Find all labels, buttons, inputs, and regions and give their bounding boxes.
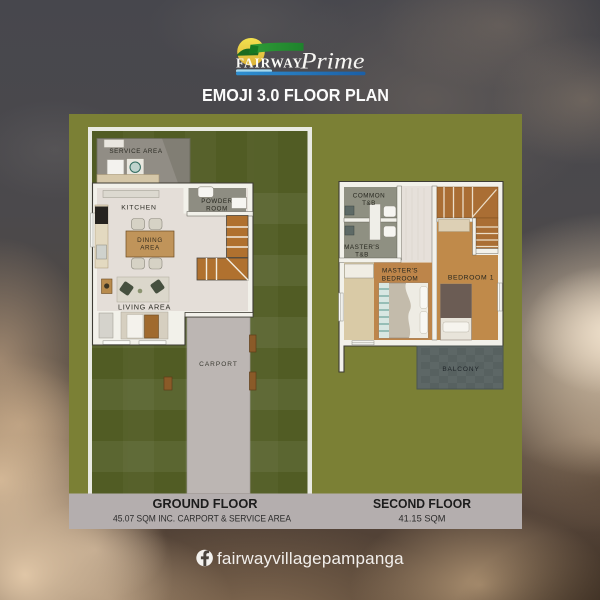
svg-text:COMMON: COMMON — [353, 193, 385, 200]
svg-text:FAIRWAY: FAIRWAY — [236, 56, 303, 71]
svg-text:KITCHEN: KITCHEN — [121, 205, 156, 212]
svg-text:LIVING AREA: LIVING AREA — [118, 303, 171, 312]
svg-text:BALCONY: BALCONY — [442, 366, 479, 373]
svg-text:fairwayvillagepampanga: fairwayvillagepampanga — [217, 549, 404, 568]
svg-text:POWDER: POWDER — [201, 198, 232, 205]
svg-text:Prime: Prime — [299, 49, 364, 75]
svg-text:GROUND FLOOR: GROUND FLOOR — [153, 496, 258, 511]
svg-text:SECOND FLOOR: SECOND FLOOR — [373, 496, 471, 511]
svg-text:DINING: DINING — [137, 237, 163, 244]
svg-text:MASTER'S: MASTER'S — [344, 244, 380, 251]
svg-text:41.15 SQM: 41.15 SQM — [399, 514, 446, 524]
svg-text:BEDROOM 1: BEDROOM 1 — [448, 275, 494, 282]
svg-text:45.07 SQM INC. CARPORT & SERVI: 45.07 SQM INC. CARPORT & SERVICE AREA — [113, 514, 291, 524]
svg-text:BEDROOM: BEDROOM — [382, 276, 419, 283]
svg-text:MASTER'S: MASTER'S — [382, 268, 418, 275]
svg-text:EMOJI 3.0 FLOOR PLAN: EMOJI 3.0 FLOOR PLAN — [202, 85, 389, 105]
svg-text:T&B: T&B — [362, 200, 376, 207]
svg-text:SERVICE AREA: SERVICE AREA — [109, 148, 162, 155]
svg-text:CARPORT: CARPORT — [199, 361, 238, 368]
svg-text:AREA: AREA — [140, 245, 160, 252]
svg-text:T&B: T&B — [355, 252, 369, 259]
